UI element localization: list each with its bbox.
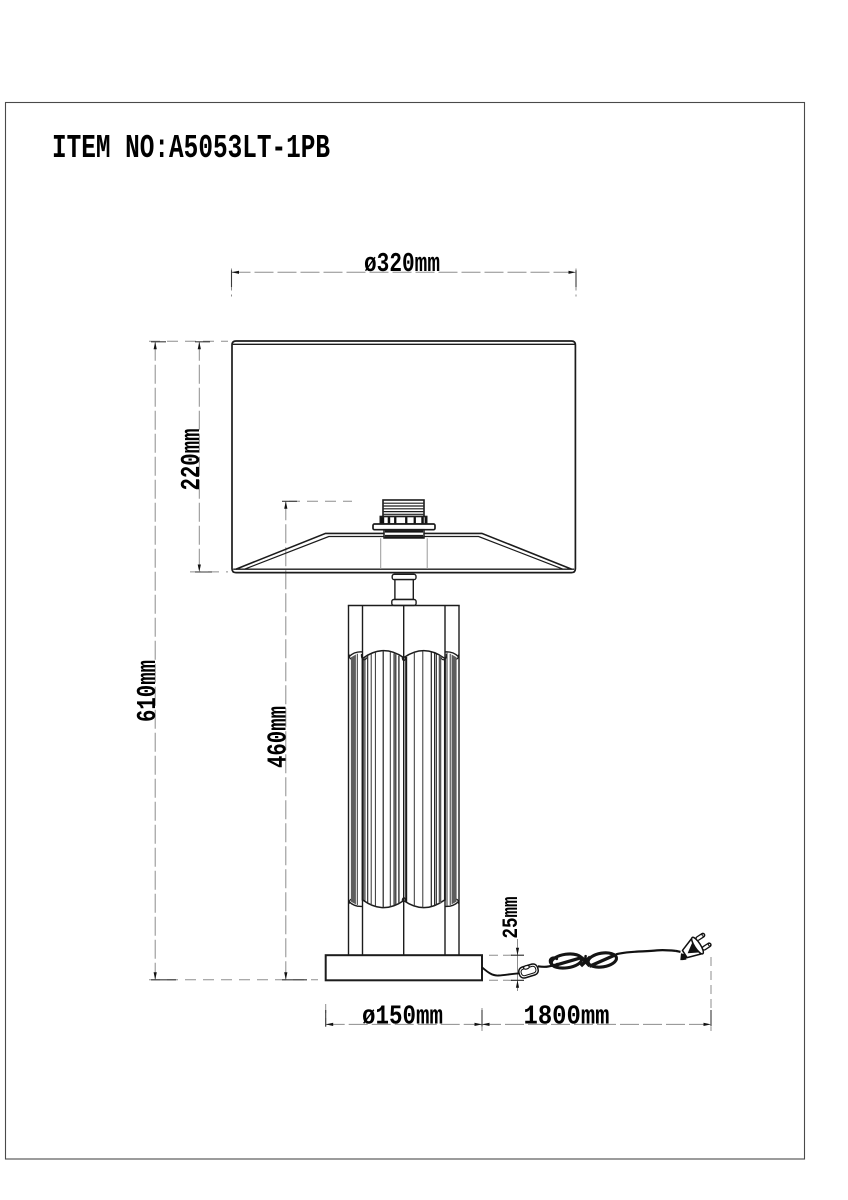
svg-text:ITEM NO:A5053LT-1PB: ITEM NO:A5053LT-1PB <box>52 130 330 167</box>
svg-text:610mm: 610mm <box>133 660 163 722</box>
svg-text:25mm: 25mm <box>499 897 524 939</box>
svg-text:220mm: 220mm <box>177 429 207 491</box>
svg-text:460mm: 460mm <box>263 706 293 768</box>
svg-text:ø150mm: ø150mm <box>362 1002 443 1032</box>
svg-text:1800mm: 1800mm <box>524 1002 610 1032</box>
svg-text:ø320mm: ø320mm <box>364 249 440 279</box>
